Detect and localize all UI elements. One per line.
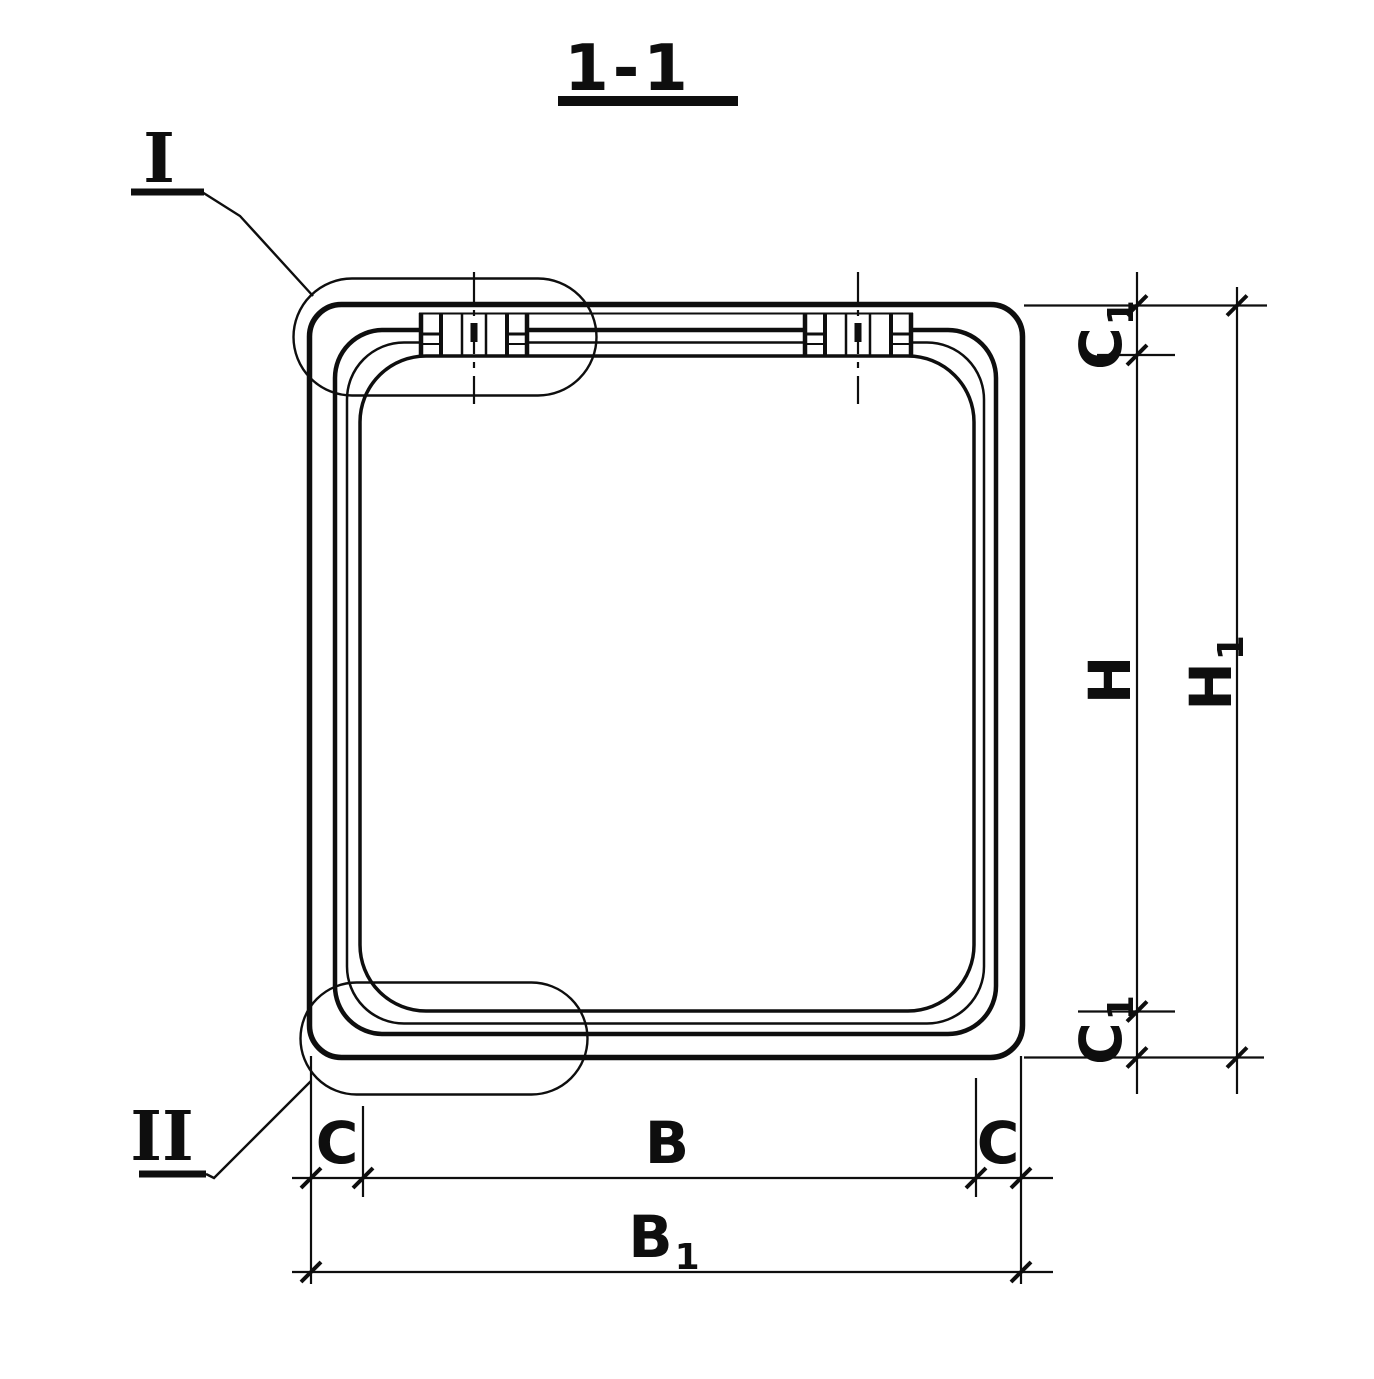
dim-letter: H — [1177, 662, 1245, 711]
dim-subscript: 1 — [1101, 995, 1142, 1020]
dim-label-c-right: C — [977, 1109, 1020, 1177]
dim-subscript: 1 — [675, 1237, 700, 1278]
dim-label-c-left: C — [316, 1109, 359, 1177]
detail-label-1: I — [143, 119, 175, 199]
dim-letter: B — [628, 1203, 672, 1271]
dim-letter: B — [645, 1109, 689, 1177]
dim-letter: C — [1067, 1022, 1135, 1065]
dim-letter: C — [1067, 327, 1135, 370]
dim-letter: C — [977, 1109, 1020, 1177]
technical-drawing-section-1-1: 1-1 — [0, 0, 1374, 1379]
dim-letter: C — [316, 1109, 359, 1177]
detail-label-2: II — [130, 1097, 194, 1177]
dim-letter: H — [1076, 656, 1144, 705]
dim-label-b: B — [645, 1109, 689, 1177]
dim-subscript: 1 — [1101, 300, 1142, 325]
dim-subscript: 1 — [1211, 635, 1252, 660]
drawing-sheet: 1-1 — [0, 0, 1374, 1379]
dim-label-h: H — [1076, 656, 1144, 705]
section-title: 1-1 — [564, 32, 692, 106]
